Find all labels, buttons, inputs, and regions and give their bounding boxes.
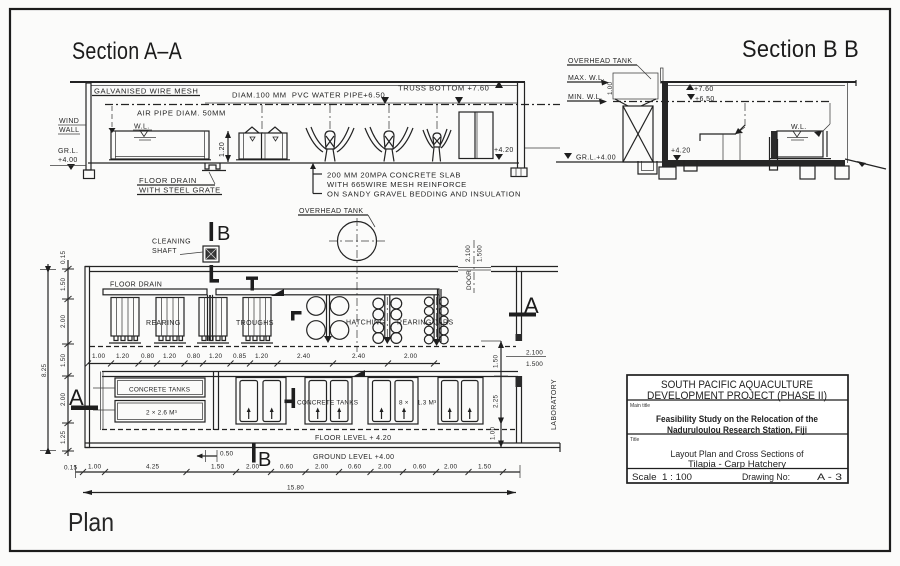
svg-text:Feasibility Study on the Reloc: Feasibility Study on the Relocation of t… (656, 414, 818, 425)
svg-text:WITH 665WIRE MESH REINFORCE: WITH 665WIRE MESH REINFORCE (327, 180, 467, 189)
svg-text:2.40: 2.40 (352, 353, 365, 360)
svg-text:8.25: 8.25 (41, 364, 48, 377)
svg-text:CONCRETE TANKS: CONCRETE TANKS (129, 387, 190, 394)
svg-text:MAX. W.L.: MAX. W.L. (568, 75, 605, 82)
svg-text:REARING JARS: REARING JARS (397, 320, 454, 327)
svg-text:Drawing No:: Drawing No: (742, 472, 790, 483)
svg-text:1.3 M³: 1.3 M³ (417, 400, 436, 407)
svg-text:0.60: 0.60 (348, 464, 361, 471)
svg-text:Title: Title (630, 437, 639, 443)
svg-text:0.80: 0.80 (141, 353, 154, 360)
svg-text:2.00: 2.00 (246, 464, 259, 471)
svg-text:1.20: 1.20 (209, 353, 222, 360)
svg-text:+4.00: +4.00 (58, 157, 78, 164)
svg-text:DIAM.100 MM PVC WATER PIPE+6.: DIAM.100 MM PVC WATER PIPE+6.50 (232, 91, 385, 100)
svg-text:1.20: 1.20 (255, 353, 268, 360)
svg-text:OVERHEAD TANK: OVERHEAD TANK (299, 208, 363, 215)
svg-text:2.00: 2.00 (315, 464, 328, 471)
svg-text:DOOR: DOOR (466, 270, 473, 290)
svg-text:Scale 1 : 100: Scale 1 : 100 (632, 472, 692, 483)
svg-text:FLOOR DRAIN: FLOOR DRAIN (110, 282, 162, 289)
svg-text:0.15: 0.15 (60, 251, 67, 264)
svg-text:LABORATORY: LABORATORY (551, 379, 558, 430)
svg-text:ON SANDY GRAVEL BEDDING AND IN: ON SANDY GRAVEL BEDDING AND INSULATION (327, 190, 521, 199)
svg-text:Tilapia - Carp Hatchery: Tilapia - Carp Hatchery (688, 459, 786, 470)
svg-text:1.500: 1.500 (526, 361, 543, 368)
svg-text:A: A (69, 385, 84, 410)
svg-text:+4.20: +4.20 (671, 148, 691, 155)
svg-text:1.50: 1.50 (60, 278, 67, 291)
svg-text:GALVANISED WIRE MESH: GALVANISED WIRE MESH (94, 87, 198, 96)
svg-text:1.50: 1.50 (211, 464, 224, 471)
svg-text:4.25: 4.25 (146, 464, 159, 471)
svg-text:200 MM 20MPA CONCRETE SLAB: 200 MM 20MPA CONCRETE SLAB (327, 171, 461, 180)
svg-text:1.00: 1.00 (92, 353, 105, 360)
svg-text:Plan: Plan (68, 507, 114, 537)
svg-text:TRUSS BOTTOM +7.60: TRUSS BOTTOM +7.60 (398, 84, 489, 93)
svg-text:1.500: 1.500 (477, 245, 484, 262)
svg-text:+7.60: +7.60 (694, 86, 714, 93)
svg-text:DEVELOPMENT PROJECT (PHASE II): DEVELOPMENT PROJECT (PHASE II) (647, 390, 827, 402)
svg-text:0.60: 0.60 (280, 464, 293, 471)
svg-text:1.20: 1.20 (116, 353, 129, 360)
svg-text:FLOOR DRAIN: FLOOR DRAIN (139, 176, 197, 185)
svg-text:2.25: 2.25 (493, 395, 500, 408)
svg-text:TROUGHS: TROUGHS (236, 320, 274, 327)
svg-text:REARING: REARING (146, 320, 181, 327)
svg-text:1.00: 1.00 (88, 464, 101, 471)
svg-text:1.50: 1.50 (493, 355, 500, 368)
svg-text:0.85: 0.85 (233, 353, 246, 360)
svg-text:AIR PIPE DIAM. 50MM: AIR PIPE DIAM. 50MM (137, 109, 226, 118)
svg-text:WIND: WIND (59, 118, 79, 125)
svg-text:MIN. W.L.: MIN. W.L. (568, 94, 602, 101)
svg-text:2.00: 2.00 (60, 315, 67, 328)
svg-text:A - 3: A - 3 (817, 472, 842, 483)
svg-text:Section A–A: Section A–A (72, 38, 182, 65)
svg-text:0.50: 0.50 (220, 451, 233, 458)
svg-text:2.00: 2.00 (60, 393, 67, 406)
svg-text:HATCHING: HATCHING (346, 320, 385, 327)
svg-text:GROUND LEVEL +4.00: GROUND LEVEL +4.00 (313, 454, 394, 461)
svg-text:2.40: 2.40 (297, 353, 310, 360)
svg-text:2.100: 2.100 (465, 245, 472, 262)
svg-text:15.80: 15.80 (287, 485, 304, 492)
svg-text:CONCRETE TANKS: CONCRETE TANKS (297, 400, 358, 407)
svg-text:2.100: 2.100 (526, 350, 543, 357)
svg-text:FLOOR LEVEL + 4.20: FLOOR LEVEL + 4.20 (315, 435, 391, 442)
svg-text:2.00: 2.00 (444, 464, 457, 471)
svg-text:2.00: 2.00 (404, 353, 417, 360)
svg-text:8 ×: 8 × (399, 400, 409, 407)
svg-text:WALL: WALL (59, 127, 79, 134)
svg-text:WITH STEEL GRATE: WITH STEEL GRATE (139, 186, 221, 195)
svg-text:2 × 2.6 M³: 2 × 2.6 M³ (146, 410, 177, 417)
svg-text:0.60: 0.60 (413, 464, 426, 471)
svg-text:W.L.: W.L. (134, 124, 150, 131)
svg-text:B: B (217, 223, 230, 245)
svg-text:OVERHEAD TANK: OVERHEAD TANK (568, 58, 632, 65)
svg-text:2.00: 2.00 (378, 464, 391, 471)
svg-text:1.20: 1.20 (219, 142, 226, 157)
svg-text:1.50: 1.50 (478, 464, 491, 471)
svg-text:Naduruloulou Research Station,: Naduruloulou Research Station, Fiji (667, 425, 807, 436)
svg-text:1.25: 1.25 (60, 431, 67, 444)
svg-text:A: A (524, 293, 539, 318)
svg-text:Section B B: Section B B (742, 36, 859, 63)
svg-text:0.80: 0.80 (187, 353, 200, 360)
svg-text:Main title: Main title (630, 403, 650, 409)
svg-text:+4.20: +4.20 (494, 147, 514, 154)
svg-text:0.15: 0.15 (64, 465, 77, 472)
svg-text:GR.L.+4.00: GR.L.+4.00 (576, 155, 616, 162)
svg-text:GR.L.: GR.L. (58, 148, 78, 155)
svg-text:B: B (258, 449, 271, 471)
svg-text:1.20: 1.20 (163, 353, 176, 360)
svg-text:1.50: 1.50 (60, 354, 67, 367)
svg-text:1.00: 1.00 (490, 427, 497, 440)
svg-text:W.L.: W.L. (791, 124, 807, 131)
svg-text:SHAFT: SHAFT (152, 248, 177, 255)
svg-text:CLEANING: CLEANING (152, 239, 191, 246)
